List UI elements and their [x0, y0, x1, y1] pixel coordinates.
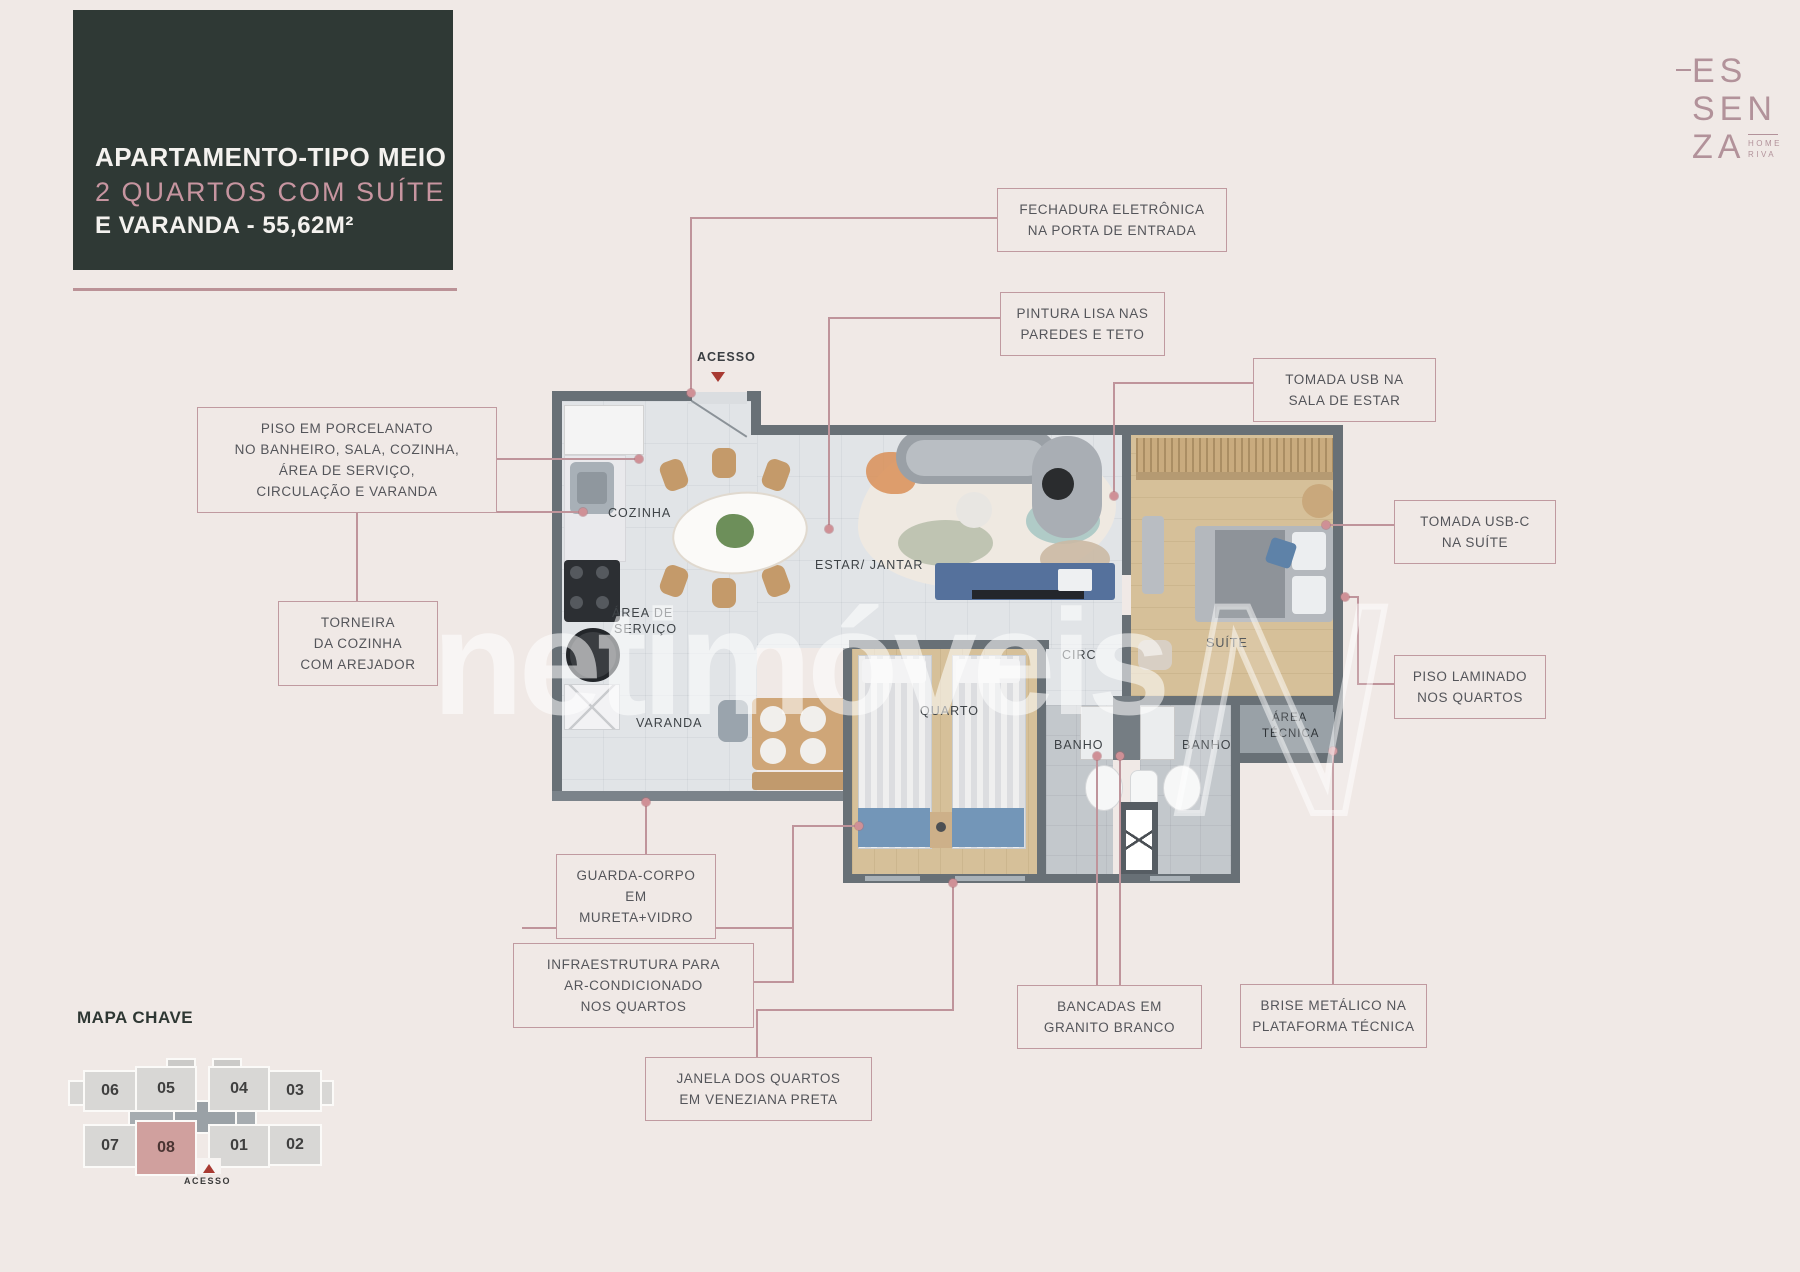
callout-text: BRISE METÁLICO NA: [1261, 995, 1407, 1016]
leader-line: [828, 317, 830, 529]
callout-usb-living: TOMADA USB NA SALA DE ESTAR: [1253, 358, 1436, 422]
netimoveis-monogram: N: [1168, 536, 1385, 882]
callout-text: TOMADA USB-C: [1420, 511, 1530, 532]
leader-line: [356, 511, 358, 601]
logo-subtext-line: HOME: [1748, 138, 1782, 149]
leader-line: [828, 317, 1000, 319]
apartment-type-title: APARTAMENTO-TIPO MEIO: [95, 140, 453, 174]
wall: [751, 425, 1343, 435]
leader-line: [756, 1009, 954, 1011]
leader-dot: [579, 508, 587, 516]
callout-text: PISO LAMINADO: [1413, 666, 1527, 687]
balcony-bench: [752, 772, 850, 790]
unit-number: 07: [101, 1137, 119, 1155]
unit-number: 01: [230, 1137, 248, 1155]
keymap-unit-08-highlighted: 08: [137, 1122, 195, 1174]
callout-text: COM AREJADOR: [300, 654, 415, 675]
leader-line: [792, 825, 859, 827]
keymap-unit-03: 03: [270, 1072, 320, 1110]
callout-text: NA PORTA DE ENTRADA: [1028, 220, 1196, 241]
callout-granite-countertops: BANCADAS EM GRANITO BRANCO: [1017, 985, 1202, 1049]
living-label: ESTAR/ JANTAR: [815, 558, 923, 572]
leader-dot: [635, 455, 643, 463]
logo-subtext-line: RIVA: [1748, 149, 1782, 160]
leader-line: [1113, 382, 1253, 384]
leader-dot: [1322, 521, 1330, 529]
logo-dash: [1676, 69, 1691, 71]
apartment-area: E VARANDA - 55,62M²: [95, 210, 453, 242]
callout-kitchen-faucet: TORNEIRA DA COZINHA COM AREJADOR: [278, 601, 438, 686]
floorplan-page: APARTAMENTO-TIPO MEIO 2 QUARTOS COM SUÍT…: [0, 0, 1800, 1272]
shaft: [1126, 810, 1152, 870]
leader-line: [952, 884, 954, 1010]
keymap-unit-04: 04: [210, 1068, 268, 1110]
leader-line: [1119, 757, 1121, 985]
leader-line: [690, 217, 997, 219]
callout-usbc-suite: TOMADA USB-C NA SUÍTE: [1394, 500, 1556, 564]
leader-line: [1326, 524, 1394, 526]
callout-text: FECHADURA ELETRÔNICA: [1019, 199, 1204, 220]
callout-text: EM VENEZIANA PRETA: [679, 1089, 837, 1110]
unit-number: 05: [157, 1080, 175, 1098]
side-table: [1042, 468, 1074, 500]
leader-dot: [1093, 752, 1101, 760]
netimoveis-watermark: netimóveis: [432, 576, 1166, 749]
callout-text: INFRAESTRUTURA PARA: [547, 954, 720, 975]
logo-subtext-rule: [1748, 134, 1778, 135]
callout-text: NA SUÍTE: [1442, 532, 1508, 553]
callout-electronic-lock: FECHADURA ELETRÔNICA NA PORTA DE ENTRADA: [997, 188, 1227, 252]
leader-line: [756, 1010, 758, 1057]
bed-blanket: [858, 808, 930, 847]
leader-line: [1096, 757, 1098, 985]
suite-closet-shelf: [1136, 472, 1333, 480]
apartment-subtitle: 2 QUARTOS COM SUÍTE: [95, 174, 453, 210]
toilet: [1085, 765, 1123, 811]
callout-text: PLATAFORMA TÉCNICA: [1252, 1016, 1414, 1037]
callout-text: PISO EM PORCELANATO: [261, 418, 433, 439]
unit-number: 04: [230, 1080, 248, 1098]
kitchen-label: COZINHA: [608, 506, 671, 520]
callout-text: PAREDES E TETO: [1021, 324, 1145, 345]
callout-text: GRANITO BRANCO: [1044, 1017, 1175, 1038]
leader-line: [1113, 382, 1115, 496]
keymap-unit-06: 06: [85, 1072, 135, 1110]
callout-smooth-paint: PINTURA LISA NAS PAREDES E TETO: [1000, 292, 1165, 356]
callout-text: NOS QUARTOS: [581, 996, 687, 1017]
callout-porcelain-floor: PISO EM PORCELANATO NO BANHEIRO, SALA, C…: [197, 407, 497, 513]
keymap-unit-02: 02: [270, 1126, 320, 1164]
balcony-guardrail-wall: [552, 791, 852, 801]
keymap-title: MAPA CHAVE: [77, 1008, 193, 1028]
leader-line: [645, 803, 647, 854]
leader-dot: [949, 879, 957, 887]
callout-text: GUARDA-CORPO EM: [565, 865, 707, 907]
callout-text: ÁREA DE SERVIÇO,: [279, 460, 415, 481]
unit-number: 06: [101, 1082, 119, 1100]
callout-text: SALA DE ESTAR: [1289, 390, 1401, 411]
leader-dot: [1110, 492, 1118, 500]
suite-closet: [1136, 438, 1333, 472]
bed-blanket: [952, 808, 1024, 847]
table-plant: [716, 514, 754, 548]
callout-text: CIRCULAÇÃO E VARANDA: [256, 481, 437, 502]
keymap-unit-05: 05: [137, 1068, 195, 1110]
callout-metal-brise: BRISE METÁLICO NA PLATAFORMA TÉCNICA: [1240, 984, 1427, 1048]
leader-line: [690, 217, 692, 393]
pouf: [956, 492, 992, 528]
callout-text: JANELA DOS QUARTOS: [676, 1068, 840, 1089]
callout-text: BANCADAS EM: [1057, 996, 1162, 1017]
kitchen-sink-basin: [577, 472, 607, 504]
callout-text: TOMADA USB NA: [1285, 369, 1404, 390]
callout-guardrail: GUARDA-CORPO EM MURETA+VIDRO: [556, 854, 716, 939]
keymap-access-label: ACESSO: [184, 1176, 231, 1186]
logo-line: ES: [1692, 52, 1777, 90]
leader-line: [792, 826, 794, 983]
kitchen-cabinet: [564, 405, 644, 455]
leader-dot: [642, 798, 650, 806]
callout-text: NOS QUARTOS: [1417, 687, 1523, 708]
logo-line: SEN: [1692, 90, 1777, 128]
access-arrow-icon: [711, 372, 725, 382]
keymap-building-edge: [318, 1082, 332, 1104]
title-card: APARTAMENTO-TIPO MEIO 2 QUARTOS COM SUÍT…: [73, 10, 453, 270]
bedroom-window: [865, 876, 920, 881]
callout-ac-infrastructure: INFRAESTRUTURA PARA AR-CONDICIONADO NOS …: [513, 943, 754, 1028]
callout-text: MURETA+VIDRO: [579, 907, 693, 928]
leader-dot: [855, 822, 863, 830]
nightstand-lamp: [936, 822, 946, 832]
leader-dot: [1116, 752, 1124, 760]
suite-side-table: [1302, 484, 1336, 518]
callout-text: NO BANHEIRO, SALA, COZINHA,: [235, 439, 460, 460]
callout-text: AR-CONDICIONADO: [564, 975, 703, 996]
callout-text: DA COZINHA: [314, 633, 403, 654]
title-divider-rule: [73, 288, 457, 291]
leader-line: [754, 981, 793, 983]
bedroom-window: [955, 876, 1025, 881]
keymap-unit-07: 07: [85, 1126, 135, 1166]
access-label: ACESSO: [697, 350, 756, 364]
wall: [1122, 425, 1131, 575]
logo-subtext: HOME RIVA: [1748, 134, 1782, 160]
callout-bedroom-window: JANELA DOS QUARTOS EM VENEZIANA PRETA: [645, 1057, 872, 1121]
callout-laminate-floor: PISO LAMINADO NOS QUARTOS: [1394, 655, 1546, 719]
sofa-cushions: [906, 440, 1046, 476]
leader-dot: [825, 525, 833, 533]
leader-dot: [687, 389, 695, 397]
callout-text: TORNEIRA: [321, 612, 395, 633]
unit-number: 02: [286, 1136, 304, 1154]
keymap-building-edge: [70, 1082, 85, 1104]
callout-text: PINTURA LISA NAS: [1017, 303, 1149, 324]
unit-number: 03: [286, 1082, 304, 1100]
unit-number: 08: [157, 1139, 175, 1157]
keymap-access-arrow-icon: [203, 1164, 215, 1173]
dining-chair: [712, 448, 736, 478]
wall: [552, 391, 692, 401]
leader-line: [497, 458, 639, 460]
